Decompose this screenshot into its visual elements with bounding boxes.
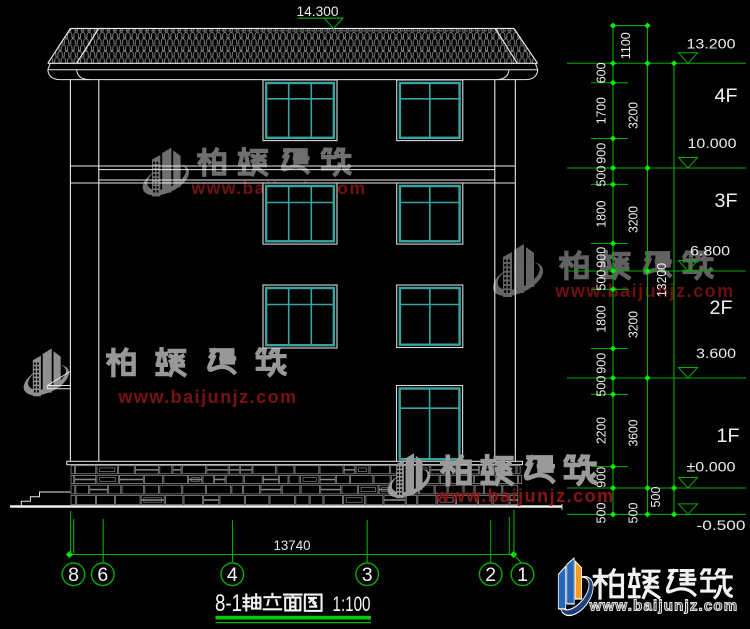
svg-text:4F: 4F bbox=[715, 85, 738, 107]
svg-text:3.600: 3.600 bbox=[696, 346, 736, 361]
svg-text:8: 8 bbox=[68, 564, 79, 586]
svg-text:10.000: 10.000 bbox=[688, 136, 737, 151]
svg-text:13200: 13200 bbox=[655, 263, 669, 297]
svg-text:3: 3 bbox=[362, 564, 373, 586]
svg-text:900: 900 bbox=[595, 247, 609, 268]
svg-text:500: 500 bbox=[595, 270, 609, 291]
svg-text:14.300: 14.300 bbox=[297, 4, 339, 19]
svg-text:www.baijunjz.com: www.baijunjz.com bbox=[554, 281, 734, 301]
svg-text:1100: 1100 bbox=[619, 32, 633, 59]
svg-text:3200: 3200 bbox=[627, 102, 641, 129]
svg-text:900: 900 bbox=[595, 467, 609, 488]
svg-text:1800: 1800 bbox=[595, 305, 609, 332]
svg-text:500: 500 bbox=[595, 376, 609, 397]
svg-text:3600: 3600 bbox=[627, 419, 641, 446]
svg-text:1:100: 1:100 bbox=[333, 593, 371, 616]
svg-text:500: 500 bbox=[649, 486, 663, 507]
svg-text:13740: 13740 bbox=[274, 538, 311, 553]
svg-text:2: 2 bbox=[485, 564, 496, 586]
svg-text:1: 1 bbox=[517, 564, 528, 586]
svg-text:8-1: 8-1 bbox=[215, 590, 242, 617]
svg-text:1F: 1F bbox=[717, 425, 740, 447]
svg-text:500: 500 bbox=[595, 502, 609, 523]
svg-text:900: 900 bbox=[595, 353, 609, 374]
svg-text:3200: 3200 bbox=[627, 206, 641, 233]
svg-text:1800: 1800 bbox=[595, 200, 609, 227]
svg-text:2200: 2200 bbox=[595, 417, 609, 444]
svg-text:1700: 1700 bbox=[595, 97, 609, 124]
svg-text:500: 500 bbox=[627, 502, 641, 523]
svg-text:3200: 3200 bbox=[627, 311, 641, 338]
svg-text:www.baijunjz.com: www.baijunjz.com bbox=[434, 486, 614, 506]
svg-text:2F: 2F bbox=[710, 297, 733, 319]
svg-text:6: 6 bbox=[97, 564, 108, 586]
svg-text:500: 500 bbox=[595, 166, 609, 187]
svg-text:900: 900 bbox=[595, 143, 609, 164]
svg-text:www.baijunjz.com: www.baijunjz.com bbox=[589, 598, 739, 615]
svg-text:13.200: 13.200 bbox=[687, 37, 736, 52]
svg-text:3F: 3F bbox=[715, 190, 738, 212]
svg-text:6.800: 6.800 bbox=[690, 244, 730, 259]
svg-text:-0.500: -0.500 bbox=[697, 518, 746, 533]
svg-text:600: 600 bbox=[595, 62, 609, 83]
svg-text:www.baijunjz.com: www.baijunjz.com bbox=[117, 387, 297, 407]
svg-text:±0.000: ±0.000 bbox=[687, 460, 736, 475]
svg-text:4: 4 bbox=[227, 564, 238, 586]
